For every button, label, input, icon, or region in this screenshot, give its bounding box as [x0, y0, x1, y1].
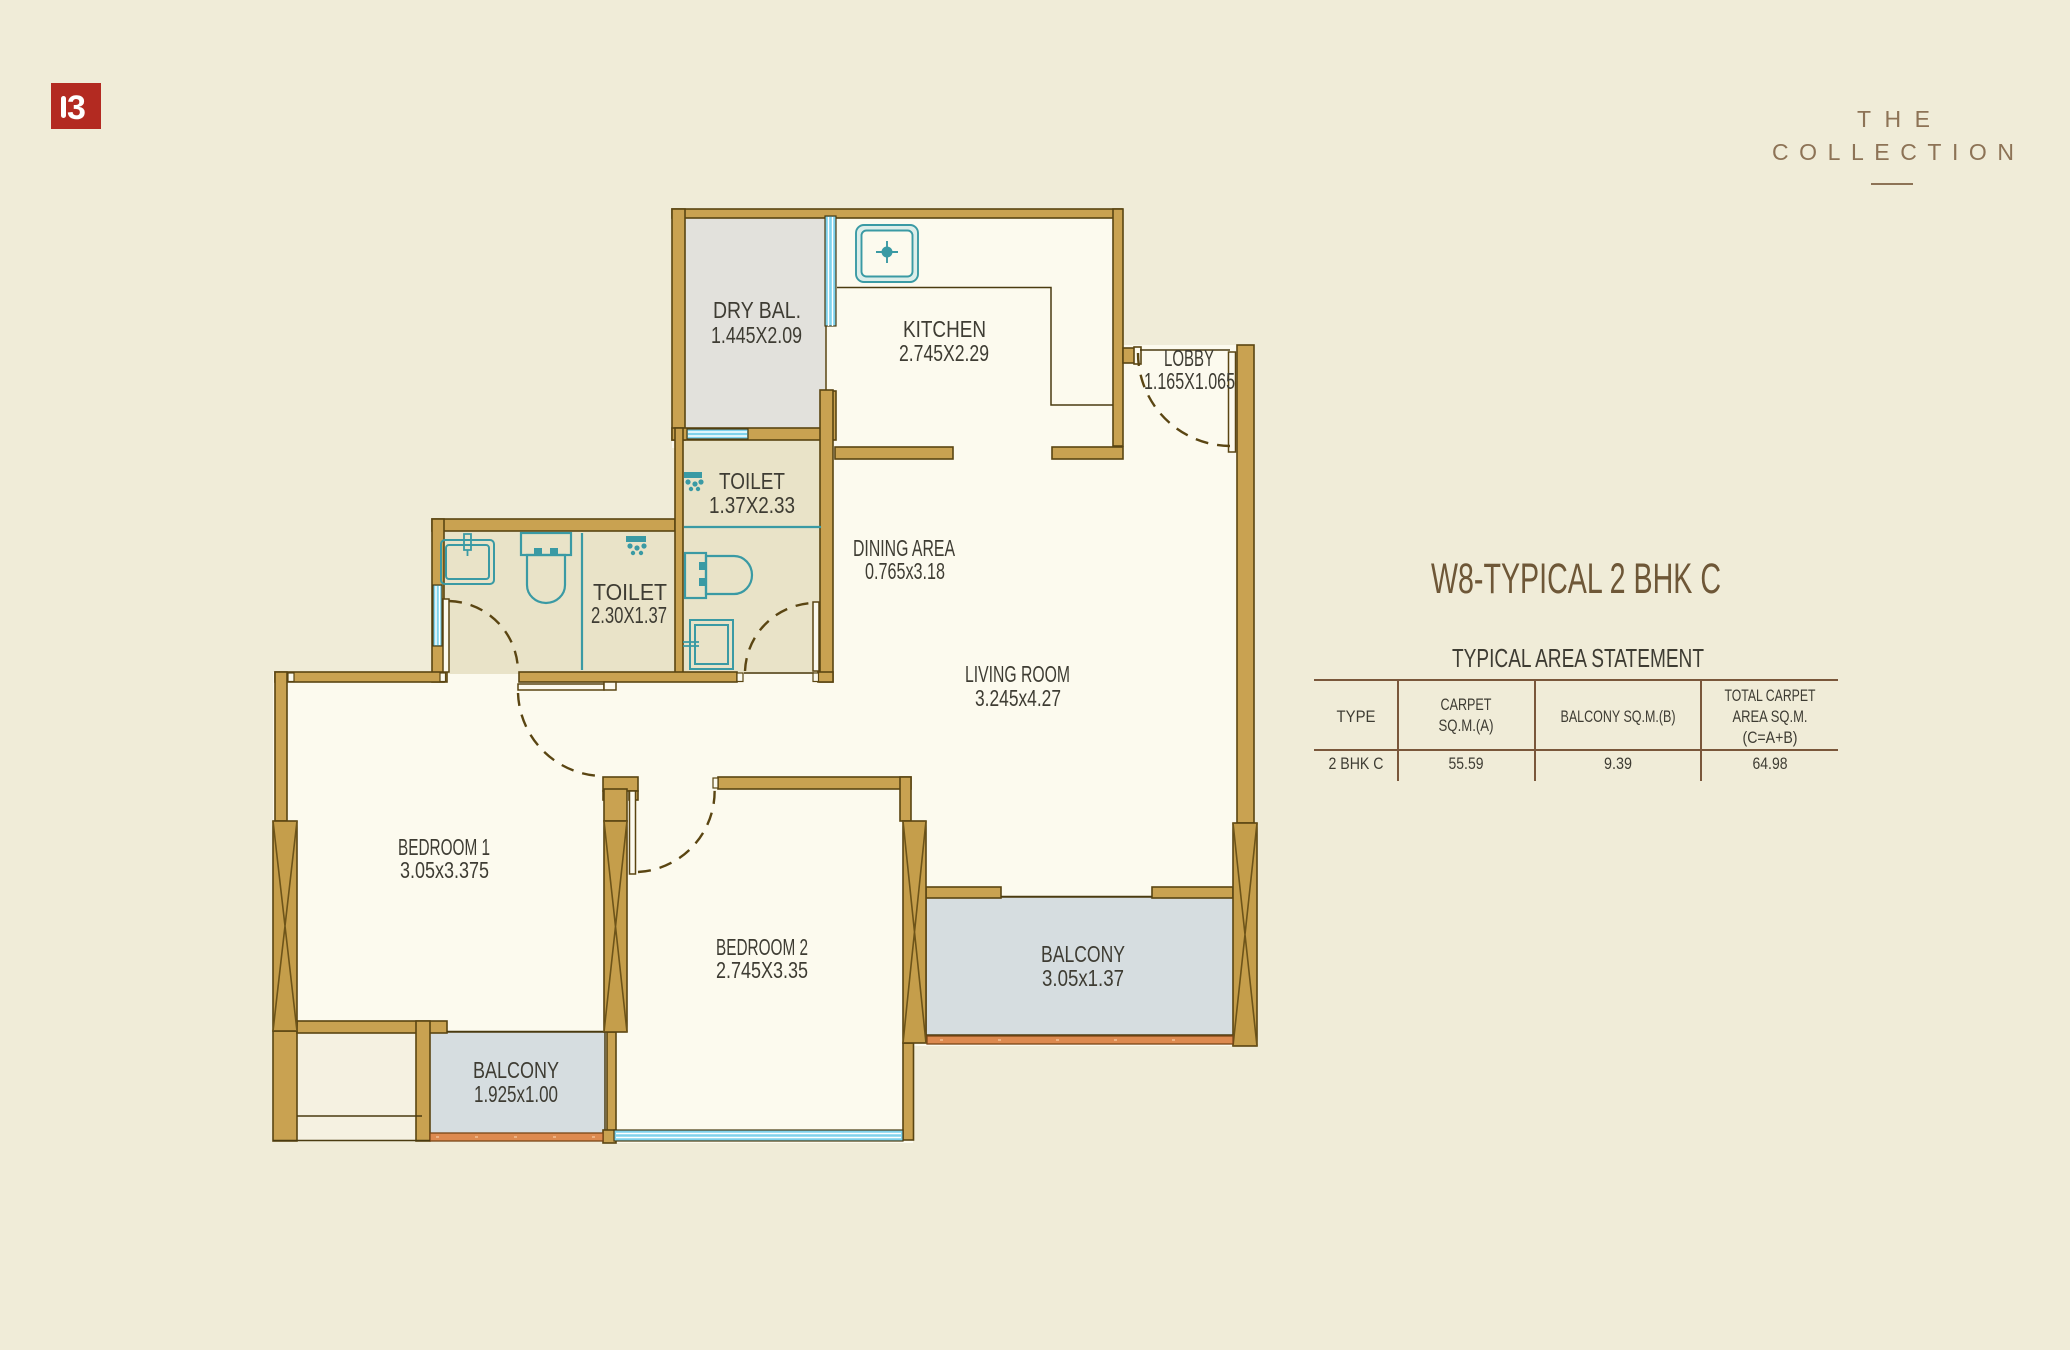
svg-text:1.445X2.09: 1.445X2.09 — [711, 322, 802, 348]
svg-text:TYPE: TYPE — [1337, 707, 1376, 726]
svg-text:AREA SQ.M.: AREA SQ.M. — [1733, 707, 1808, 726]
svg-text:64.98: 64.98 — [1753, 754, 1788, 773]
svg-text:W8-TYPICAL 2 BHK C: W8-TYPICAL 2 BHK C — [1431, 555, 1721, 603]
svg-text:(C=A+B): (C=A+B) — [1743, 728, 1798, 747]
svg-text:3.245x4.27: 3.245x4.27 — [975, 685, 1061, 711]
svg-text:CARPET: CARPET — [1441, 695, 1492, 714]
svg-text:SQ.M.(A): SQ.M.(A) — [1439, 716, 1494, 735]
svg-text:TYPICAL AREA STATEMENT: TYPICAL AREA STATEMENT — [1452, 643, 1704, 673]
svg-text:1.37X2.33: 1.37X2.33 — [709, 492, 795, 518]
svg-text:9.39: 9.39 — [1604, 754, 1632, 773]
svg-text:BALCONY SQ.M.(B): BALCONY SQ.M.(B) — [1561, 707, 1676, 726]
svg-text:1.925x1.00: 1.925x1.00 — [474, 1081, 558, 1107]
svg-text:KITCHEN: KITCHEN — [903, 316, 986, 342]
svg-text:LIVING ROOM: LIVING ROOM — [965, 661, 1070, 687]
svg-text:3: 3 — [67, 89, 86, 127]
svg-text:0.765x3.18: 0.765x3.18 — [865, 558, 945, 584]
svg-text:DRY BAL.: DRY BAL. — [713, 297, 801, 323]
svg-text:TOILET: TOILET — [719, 468, 785, 494]
svg-text:THE: THE — [1857, 106, 1930, 132]
svg-text:TOTAL CARPET: TOTAL CARPET — [1725, 686, 1816, 705]
svg-text:2.745X3.35: 2.745X3.35 — [716, 957, 808, 983]
svg-text:3.05x3.375: 3.05x3.375 — [400, 857, 489, 883]
svg-text:BALCONY: BALCONY — [1041, 941, 1125, 967]
svg-text:55.59: 55.59 — [1449, 754, 1484, 773]
svg-text:2.30X1.37: 2.30X1.37 — [591, 602, 667, 628]
svg-text:2.745X2.29: 2.745X2.29 — [899, 340, 989, 366]
svg-text:1.165X1.065: 1.165X1.065 — [1144, 368, 1235, 394]
svg-text:2 BHK C: 2 BHK C — [1329, 754, 1384, 773]
svg-text:BALCONY: BALCONY — [473, 1057, 559, 1083]
svg-text:3.05x1.37: 3.05x1.37 — [1042, 965, 1124, 991]
